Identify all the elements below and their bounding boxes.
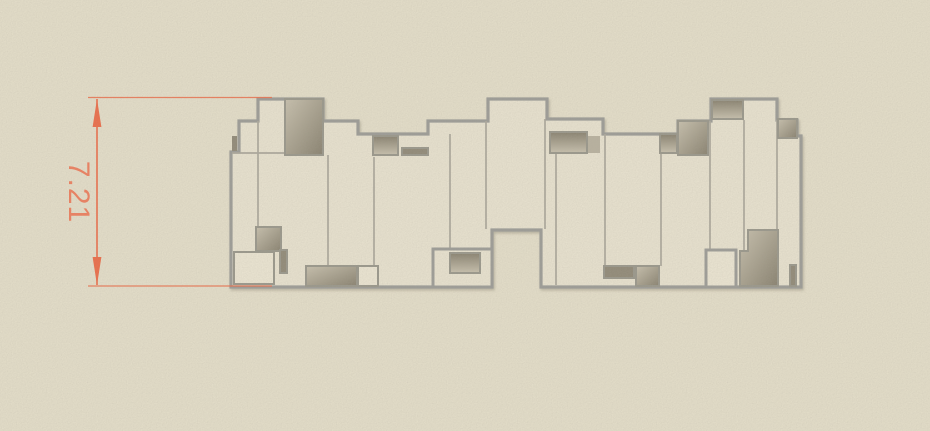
floorplan-top-view: 7.21 [0, 0, 930, 431]
cad-viewport[interactable]: 7.21 [0, 0, 930, 431]
paper-texture-overlay [0, 0, 930, 431]
